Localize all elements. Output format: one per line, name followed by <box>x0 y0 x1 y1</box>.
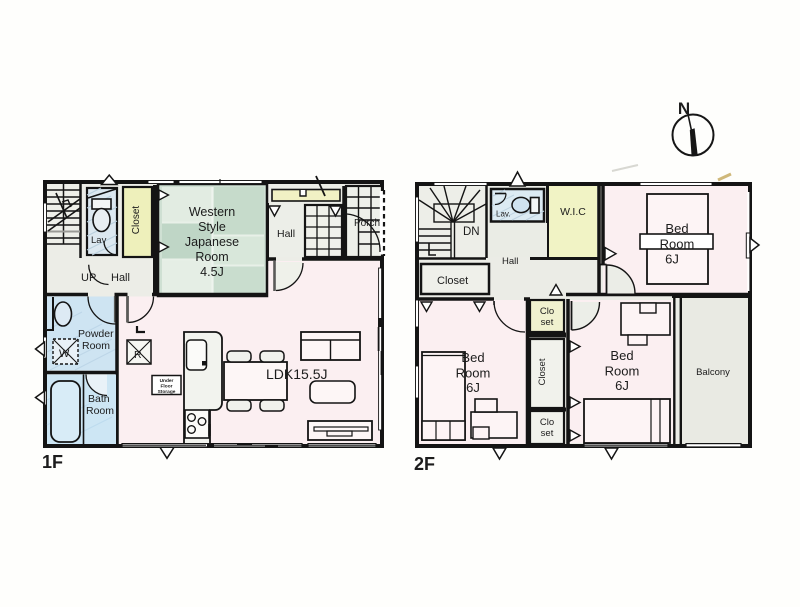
svg-text:Hall: Hall <box>502 256 518 267</box>
svg-text:Room: Room <box>86 405 114 417</box>
svg-text:N: N <box>678 99 690 118</box>
svg-text:Japanese: Japanese <box>185 235 239 249</box>
svg-text:Room: Room <box>195 250 228 264</box>
svg-text:2F: 2F <box>414 454 435 474</box>
svg-text:Porch: Porch <box>354 218 380 229</box>
svg-text:Under: Under <box>160 378 174 384</box>
svg-text:Bed: Bed <box>610 348 633 363</box>
svg-text:Closet: Closet <box>537 358 548 385</box>
svg-text:LDK15.5J: LDK15.5J <box>266 366 327 382</box>
svg-text:Clo: Clo <box>540 417 554 428</box>
svg-text:Balcony: Balcony <box>696 367 730 378</box>
svg-text:W: W <box>59 348 70 360</box>
svg-text:6J: 6J <box>466 380 480 395</box>
svg-text:Room: Room <box>605 364 640 379</box>
svg-text:Lav.: Lav. <box>496 210 511 219</box>
svg-text:Bed: Bed <box>461 350 484 365</box>
svg-text:Bed: Bed <box>665 221 688 236</box>
svg-text:W.I.C: W.I.C <box>560 206 586 218</box>
svg-text:Closet: Closet <box>437 275 468 287</box>
svg-text:6J: 6J <box>615 378 629 393</box>
svg-text:DN: DN <box>463 226 480 238</box>
svg-text:Style: Style <box>198 220 226 234</box>
svg-text:Hall: Hall <box>111 272 130 284</box>
svg-text:Closet: Closet <box>131 206 142 235</box>
svg-text:Powder: Powder <box>78 328 114 340</box>
svg-text:Clo: Clo <box>540 306 554 317</box>
svg-text:R: R <box>134 349 142 361</box>
svg-text:Room: Room <box>82 340 110 352</box>
svg-text:6J: 6J <box>665 252 679 267</box>
svg-text:Room: Room <box>660 237 695 252</box>
svg-text:Floor: Floor <box>161 384 173 390</box>
svg-text:Room: Room <box>456 366 491 381</box>
svg-text:Western: Western <box>189 205 235 219</box>
svg-text:set: set <box>541 317 554 328</box>
svg-text:1F: 1F <box>42 452 63 472</box>
svg-text:Hall: Hall <box>277 228 295 240</box>
svg-text:set: set <box>541 428 554 439</box>
svg-text:Storage: Storage <box>158 389 176 395</box>
svg-text:4.5J: 4.5J <box>200 265 224 279</box>
